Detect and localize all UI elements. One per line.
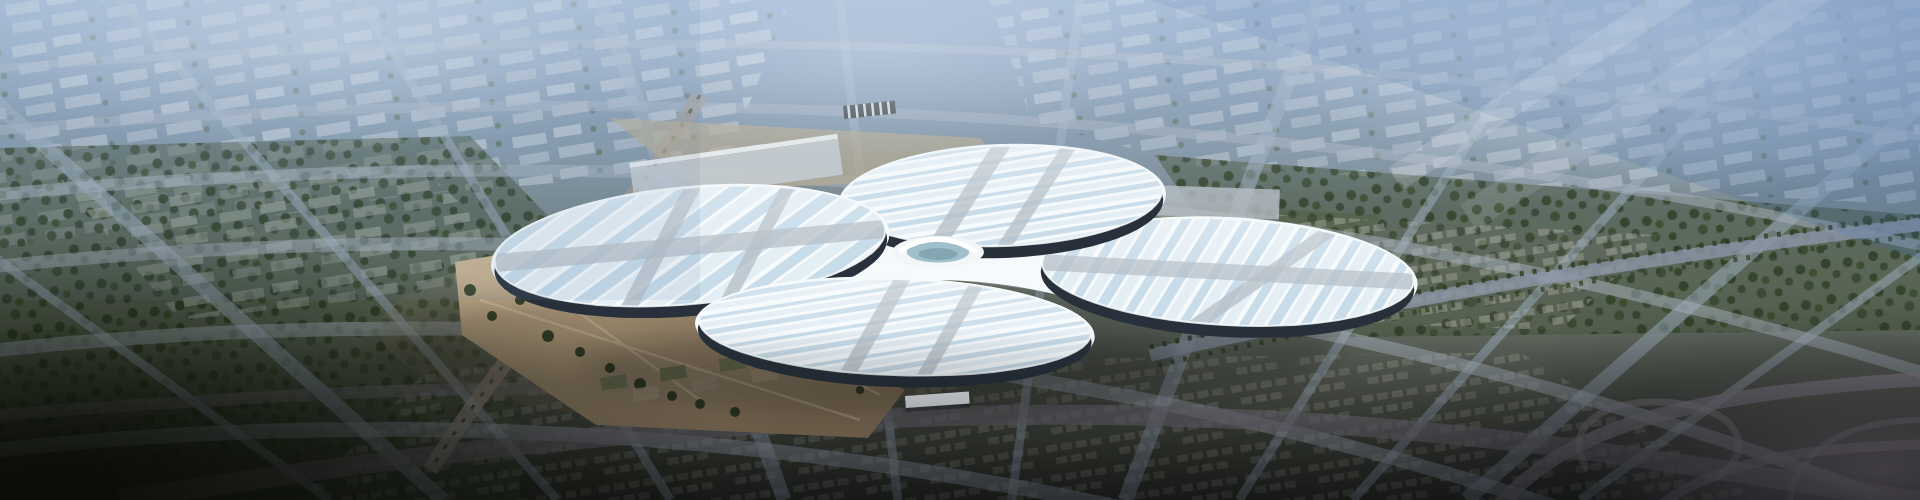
aerial-banner (0, 0, 1920, 500)
hub-core (919, 248, 958, 260)
aerial-rendering-canvas (0, 0, 1920, 500)
central-hub (892, 236, 984, 268)
